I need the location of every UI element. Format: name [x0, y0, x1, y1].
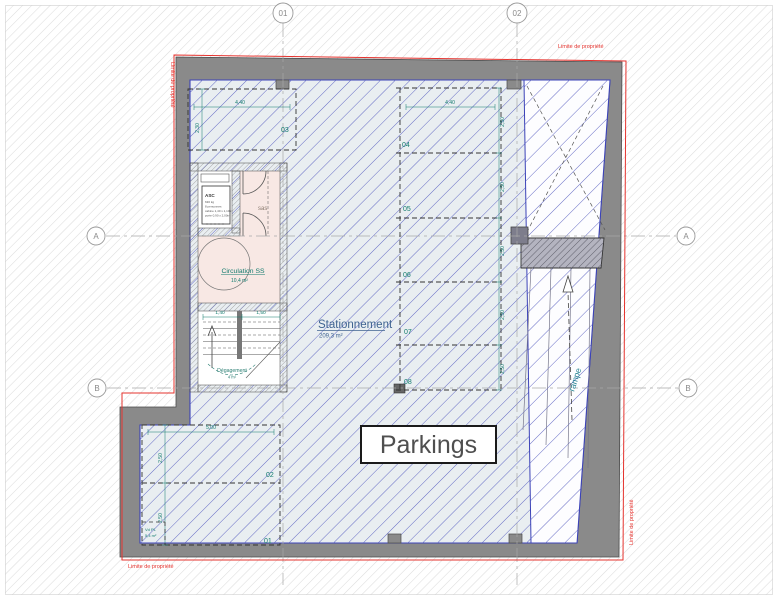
dim-label: 2,50 — [500, 364, 506, 374]
space-number-03: 03 — [281, 127, 289, 134]
dim-label: 2,30 — [195, 123, 201, 133]
dim-label: 5,00 — [206, 425, 216, 431]
corner-label: Vd PL — [145, 527, 157, 532]
parkings-title: Parkings — [380, 431, 477, 459]
elevator-cab: ASC 630 kg 8 personnes cabine 1,40 x 1,1… — [201, 174, 233, 224]
grid-label-01: 01 — [279, 9, 288, 18]
elevator-spec: porte 0,90 x 2,00m — [205, 214, 231, 218]
space-number-07: 07 — [404, 329, 412, 336]
elevator-spec: cabine 1,40 x 1,10m — [205, 209, 233, 213]
space-number-04: 04 — [402, 142, 410, 149]
stationnement-area-label: 209,3 m² — [319, 334, 343, 340]
dim-label: 2,50 — [158, 453, 164, 463]
elevator-spec: 8 personnes — [205, 205, 222, 209]
space-number-01: 01 — [264, 538, 272, 545]
grid-label-A-left: A — [93, 232, 99, 241]
dim-label: 4,40 — [235, 100, 245, 106]
grid-label-02: 02 — [513, 9, 522, 18]
circulation-label: Circulation SS — [221, 268, 265, 275]
dim-label: 2,50 — [158, 513, 164, 523]
dim-label: 1,50 — [256, 310, 266, 316]
grid-label-B-right: B — [685, 384, 690, 393]
circulation-area-label: 10,4 m² — [231, 278, 248, 284]
degagement-area-label: 4 m² — [228, 375, 237, 380]
limite-label-left: Limite de propriété — [169, 62, 175, 108]
limite-label-top: Limite de propriété — [558, 44, 604, 50]
grid-label-A-right: A — [683, 232, 689, 241]
floor-plan-svg: ASC 630 kg 8 personnes cabine 1,40 x 1,1… — [0, 0, 778, 600]
grid-label-B-left: B — [94, 384, 99, 393]
core-rooms: ASC 630 kg 8 personnes cabine 1,40 x 1,1… — [190, 163, 287, 392]
dim-label: 2,50 — [500, 246, 506, 256]
corner-area-label: 5,4 m² — [145, 533, 157, 538]
dim-label: 1,40 — [215, 310, 225, 316]
space-number-06: 06 — [403, 272, 411, 279]
space-number-08: 08 — [404, 379, 412, 386]
space-number-05: 05 — [403, 206, 411, 213]
stair-stringer — [237, 311, 242, 359]
limite-label-bottom: Limite de propriété — [128, 564, 174, 570]
parkings-title-box: Parkings — [361, 426, 496, 463]
sas-room — [240, 171, 280, 236]
limite-label-right: Limite de propriété — [629, 499, 635, 545]
dim-label: 2,50 — [500, 182, 506, 192]
space-number-02: 02 — [266, 472, 274, 479]
elevator-label: ASC — [205, 193, 215, 198]
floor-plan-sheet: ASC 630 kg 8 personnes cabine 1,40 x 1,1… — [0, 0, 778, 600]
ramp-band — [521, 238, 604, 268]
stationnement-label: Stationnement — [318, 319, 393, 331]
dim-label: 2,50 — [500, 310, 506, 320]
elevator-spec: 630 kg — [205, 200, 214, 204]
dim-label: 2,50 — [500, 117, 506, 127]
dim-label: 4,40 — [445, 100, 455, 106]
column — [511, 227, 528, 244]
sas-label: sas — [258, 206, 267, 212]
degagement-label: Dégagement — [217, 368, 247, 374]
